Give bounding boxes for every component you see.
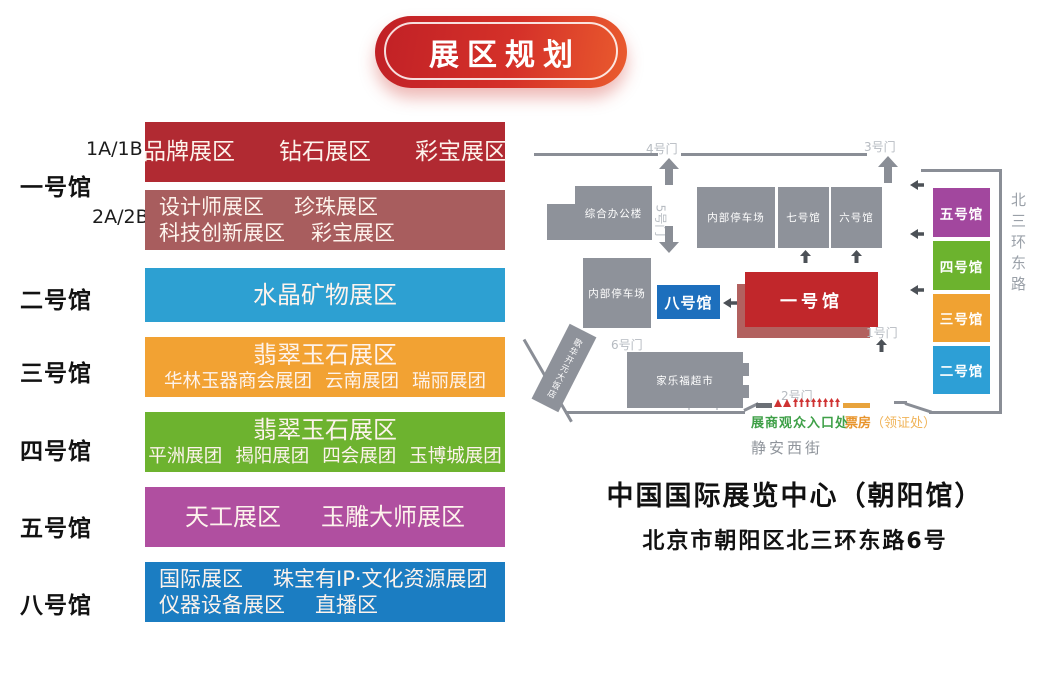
building-label: 一号馆 (780, 287, 843, 312)
exhibition-plan-page: 展区规划 一号馆 二号馆 三号馆 四号馆 五号馆 八号馆 1A/1B 2A/2B… (0, 0, 1038, 677)
gate6-label: 6号门 (611, 336, 643, 353)
gate4-label: 4号门 (646, 140, 678, 157)
gate3-label: 3号门 (864, 138, 896, 155)
zone-label: 彩宝展区 (415, 138, 507, 167)
zone-label: 天工展区 (185, 502, 281, 532)
zone-label: 品牌展区 (143, 138, 235, 167)
zone-label: 云南展团 (325, 370, 399, 393)
map-hall4-box: 四号馆 (933, 241, 990, 290)
building-office-wing (547, 204, 575, 240)
zone-label: 钻石展区 (279, 138, 371, 167)
building-supermarket-tab (743, 385, 749, 398)
zone-label: 彩宝展区 (311, 220, 395, 246)
zone-label: 珍珠展区 (294, 194, 378, 220)
building-hall1: 一号馆 (745, 272, 878, 327)
building-label: 歌华开元大饭店 (544, 336, 585, 401)
hall-label-2: 二号馆 (20, 281, 92, 315)
zone-label: 翡翠玉石展区 (253, 415, 397, 445)
zone-label: 玉雕大师展区 (321, 502, 465, 532)
zone-bar-hall3: 翡翠玉石展区 华林玉器商会展团 云南展团 瑞丽展团 (145, 337, 505, 397)
gate4-arrow-up-icon (659, 158, 679, 185)
building-hall6: 六号馆 (831, 187, 882, 248)
gate3-arrow-up-icon (878, 156, 898, 183)
east-arrow-left-icon (910, 180, 924, 190)
building-hall8: 八号馆 (655, 283, 722, 321)
zone-label: 设计师展区 (159, 194, 264, 220)
building-label: 三号馆 (940, 308, 984, 328)
zone-label: 科技创新展区 (159, 220, 285, 246)
building-label: 家乐福超市 (656, 373, 714, 388)
map-boundary (681, 153, 867, 156)
ticket-sub-label: （领证处） (871, 416, 936, 431)
page-title: 展区规划 (421, 30, 581, 74)
zone-label: 直播区 (315, 592, 378, 618)
zone-bar-hall5: 天工展区 玉雕大师展区 (145, 487, 505, 547)
hall-label-4: 四号馆 (20, 432, 92, 466)
map-boundary (894, 401, 907, 404)
building-label: 二号馆 (940, 360, 984, 380)
hall-label-5: 五号馆 (20, 509, 92, 543)
map-hall3-box: 三号馆 (933, 294, 990, 342)
zone-label: 仪器设备展区 (159, 592, 285, 618)
zone-label: 瑞丽展团 (412, 370, 486, 393)
map-boundary (534, 153, 658, 156)
map-boundary (565, 411, 745, 414)
zone-bar-hall1b: 设计师展区 珍珠展区 科技创新展区 彩宝展区 (145, 190, 505, 250)
building-office: 综合办公楼 (575, 186, 652, 240)
title-banner: 展区规划 (375, 16, 627, 88)
hall-label-3: 三号馆 (20, 354, 92, 388)
building-parking-north: 内部停车场 (697, 187, 775, 248)
entrance-marker-icon (783, 399, 791, 407)
zone-label: 珠宝有IP·文化资源展团 (273, 566, 488, 592)
building-label: 内部停车场 (707, 210, 765, 225)
map-boundary (999, 169, 1002, 414)
entrance-marker-icon (774, 399, 782, 407)
zone-label: 平洲展团 (148, 445, 222, 468)
zone-bar-hall2: 水晶矿物展区 (145, 268, 505, 322)
road-label-south: 静安西街 (751, 437, 823, 458)
building-hall7: 七号馆 (778, 187, 829, 248)
road-label-east: 北三环东路 (1008, 192, 1029, 297)
venue-name: 中国国际展览中心（朝阳馆） (555, 474, 1035, 513)
zone-bar-hall8: 国际展区 珠宝有IP·文化资源展团 仪器设备展区 直播区 (145, 562, 505, 622)
building-label: 综合办公楼 (585, 206, 643, 221)
zone-label: 华林玉器商会展团 (164, 370, 312, 393)
visitor-entrance-arrows-icon (793, 398, 840, 407)
building-label: 六号馆 (839, 210, 874, 225)
map-hall2-box: 二号馆 (933, 346, 990, 394)
zone-label: 水晶矿物展区 (253, 280, 397, 310)
zone-bar-hall4: 翡翠玉石展区 平洲展团 揭阳展团 四会展团 玉博城展团 (145, 412, 505, 472)
building-supermarket-tab (743, 363, 749, 376)
building-label: 七号馆 (786, 210, 821, 225)
hall8-arrow-left-icon (723, 298, 737, 308)
ticket-office-bar-icon (843, 403, 870, 408)
zone-label: 玉博城展团 (409, 445, 502, 468)
venue-address: 北京市朝阳区北三环东路6号 (555, 523, 1035, 555)
tag-2a2b: 2A/2B (92, 206, 149, 228)
zone-bar-hall1a: 品牌展区 钻石展区 彩宝展区 (145, 122, 505, 182)
zone-label: 翡翠玉石展区 (253, 340, 397, 370)
hall7-arrow-up-icon (800, 250, 811, 263)
hall-label-8: 八号馆 (20, 586, 92, 620)
gate5-arrow-down-icon (659, 226, 679, 253)
building-label: 八号馆 (664, 292, 712, 313)
tag-1a1b: 1A/1B (86, 138, 143, 160)
ticket-label: 票房 (845, 416, 871, 431)
map-boundary (921, 169, 1001, 172)
building-parking-west: 内部停车场 (583, 258, 651, 328)
zone-label: 四会展团 (322, 445, 396, 468)
map-boundary (929, 411, 1001, 414)
east-arrow-left-icon (910, 285, 924, 295)
zone-label: 国际展区 (159, 566, 243, 592)
ticket-office-label: 票房（领证处） (845, 412, 936, 431)
hall-label-1: 一号馆 (20, 168, 92, 202)
gate1-arrow-up-icon (876, 339, 887, 352)
east-arrow-left-icon (910, 229, 924, 239)
building-supermarket: 家乐福超市 (627, 352, 743, 408)
map-hall5-box: 五号馆 (933, 188, 990, 237)
entrance-label: 展商观众入口处 (751, 412, 849, 431)
hall6-arrow-up-icon (851, 250, 862, 263)
zone-label: 揭阳展团 (235, 445, 309, 468)
building-label: 四号馆 (940, 256, 984, 276)
entrance-bar-icon (756, 403, 772, 408)
building-label: 五号馆 (940, 203, 984, 223)
building-label: 内部停车场 (588, 286, 646, 301)
